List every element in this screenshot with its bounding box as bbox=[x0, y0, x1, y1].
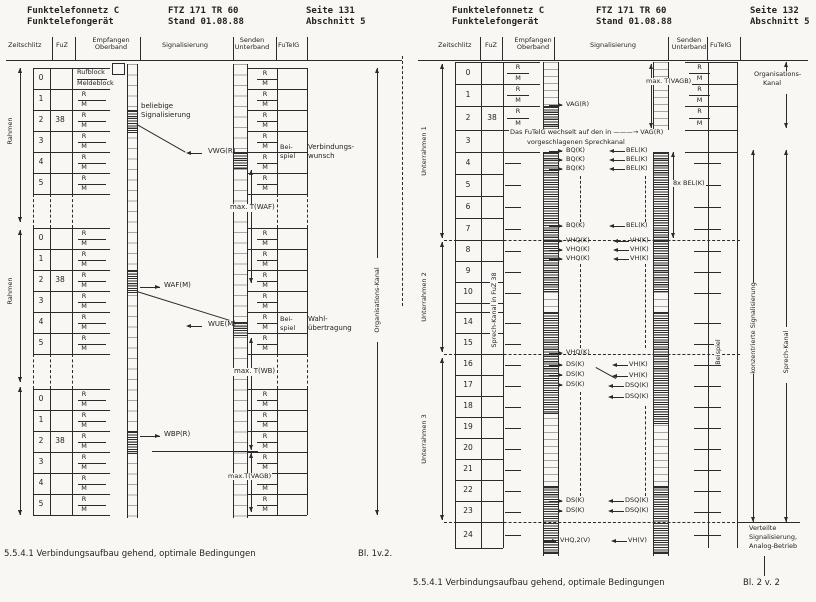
arrowhead bbox=[186, 151, 191, 155]
grid-line bbox=[708, 229, 721, 230]
cell-letter: M bbox=[78, 282, 90, 289]
arrowhead bbox=[558, 224, 563, 228]
arrowhead bbox=[784, 123, 788, 128]
grid-line bbox=[694, 386, 708, 387]
arrowhead bbox=[558, 257, 563, 261]
cell-letter: M bbox=[78, 122, 90, 129]
grid-line bbox=[505, 449, 521, 450]
grid-line bbox=[503, 303, 504, 312]
grid-line bbox=[694, 344, 708, 345]
slot-number: 0 bbox=[456, 69, 480, 77]
grid-line bbox=[673, 152, 674, 238]
grid-line bbox=[694, 535, 708, 536]
hatch-block bbox=[543, 486, 558, 554]
page-seite-132: 0RMRM1RMRM238RMRM34567891014151617181920… bbox=[408, 0, 816, 602]
grid-line bbox=[753, 150, 754, 283]
cell-letter: R bbox=[78, 391, 90, 398]
hatch-block bbox=[653, 240, 668, 292]
grid-line bbox=[307, 354, 308, 389]
cell-letter: R bbox=[78, 154, 90, 161]
signal-label-vhq-k: VHQ(K) bbox=[566, 246, 590, 253]
slot-number: 5 bbox=[34, 339, 48, 347]
grid-line bbox=[694, 229, 708, 230]
rotated-label-rahmen: Rahmen bbox=[6, 118, 14, 145]
grid-line bbox=[276, 37, 277, 60]
text-label: übertragung bbox=[308, 325, 352, 333]
cell-letter: M bbox=[78, 485, 90, 492]
cell-letter: M bbox=[259, 261, 271, 268]
grid-line bbox=[505, 365, 521, 366]
grid-line bbox=[708, 207, 721, 208]
grid-line bbox=[694, 293, 708, 294]
grid-line bbox=[617, 376, 628, 377]
grid-line bbox=[75, 37, 76, 60]
grid-line bbox=[694, 207, 708, 208]
grid-line bbox=[505, 185, 521, 186]
grid-line bbox=[708, 251, 721, 252]
hatch-block bbox=[653, 486, 668, 554]
fuz-channel: 38 bbox=[50, 437, 70, 445]
grid-line bbox=[502, 37, 503, 60]
grid-line bbox=[694, 407, 708, 408]
grid-line bbox=[694, 449, 708, 450]
text-label: 8x BEL(K) bbox=[672, 180, 706, 187]
arrowhead bbox=[558, 373, 563, 377]
signal-label-bel-k: BEL(K) bbox=[626, 156, 648, 163]
cell-letter: M bbox=[259, 485, 271, 492]
cell-letter: M bbox=[259, 282, 271, 289]
text-label: FuZ bbox=[56, 42, 68, 49]
signal-label-dsq-k: DSQ(K) bbox=[625, 393, 649, 400]
cell-letter: M bbox=[259, 303, 271, 310]
signal-label-vh-k: VH(K) bbox=[630, 246, 649, 253]
signal-strip bbox=[127, 64, 137, 518]
slot-number: 3 bbox=[34, 137, 48, 145]
grid-line bbox=[708, 470, 721, 471]
grid-line bbox=[694, 163, 708, 164]
grid-line bbox=[277, 194, 278, 228]
header-text: Seite 132 bbox=[750, 6, 799, 16]
slot-number: 5 bbox=[34, 500, 48, 508]
rotated-label-konzentrierte-signalisierung: konzentrierte Signalisierung bbox=[749, 282, 757, 373]
header-text: FTZ 171 TR 60 bbox=[596, 6, 666, 16]
signal-label-dsq-k: DSQ(K) bbox=[625, 497, 649, 504]
slot-number: 4 bbox=[34, 318, 48, 326]
call-block-label: Rufblock bbox=[77, 69, 105, 76]
call-block-box bbox=[112, 63, 125, 75]
cell-letter: R bbox=[689, 64, 710, 71]
grid-line bbox=[708, 163, 721, 164]
slot-number: 22 bbox=[456, 486, 480, 494]
cell-letter: R bbox=[259, 314, 271, 321]
grid-line bbox=[307, 228, 308, 354]
rotated-label-unterrahmen-2: Unterrahmen 2 bbox=[420, 272, 428, 321]
signal-label-vhq-k: VHQ(K) bbox=[566, 349, 590, 356]
grid-line bbox=[251, 170, 252, 283]
text-label: Zeitschlitz bbox=[8, 42, 41, 49]
grid-line bbox=[653, 152, 654, 556]
cell-letter: R bbox=[78, 272, 90, 279]
grid-line bbox=[653, 62, 654, 130]
text-label: FuTelG bbox=[710, 42, 731, 49]
grid-line bbox=[480, 37, 481, 60]
cell-letter: R bbox=[78, 230, 90, 237]
text-label: Zeitschlitz bbox=[438, 42, 471, 49]
cell-letter: M bbox=[259, 101, 271, 108]
grid-line bbox=[694, 365, 708, 366]
arrowhead bbox=[440, 64, 444, 69]
arrowhead bbox=[155, 285, 160, 289]
cell-letter: R bbox=[507, 86, 529, 93]
column-header: Senden Unterband bbox=[668, 37, 710, 52]
cell-letter: R bbox=[78, 475, 90, 482]
grid-line bbox=[277, 354, 278, 389]
text-label: Analog-Betrieb bbox=[749, 543, 797, 550]
cell-letter: R bbox=[259, 91, 271, 98]
grid-line bbox=[127, 64, 128, 518]
grid-line bbox=[708, 293, 721, 294]
grid-line bbox=[50, 68, 51, 194]
column-header: Senden Unterband bbox=[228, 37, 276, 52]
grid-line bbox=[455, 62, 540, 63]
cell-letter: R bbox=[259, 112, 271, 119]
slot-number: 7 bbox=[456, 225, 480, 233]
cell-letter: M bbox=[259, 240, 271, 247]
slot-number: 23 bbox=[456, 507, 480, 515]
cell-letter: R bbox=[507, 108, 529, 115]
cell-letter: R bbox=[78, 251, 90, 258]
grid-line bbox=[251, 338, 252, 450]
cell-letter: R bbox=[78, 112, 90, 119]
grid-line bbox=[694, 428, 708, 429]
arrowhead bbox=[558, 383, 563, 387]
cell-letter: M bbox=[259, 122, 271, 129]
slot-number: 3 bbox=[456, 137, 480, 145]
signal-label-bq-k: BQ(K) bbox=[566, 147, 585, 154]
grid-line bbox=[708, 386, 721, 387]
cell-letter: R bbox=[78, 91, 90, 98]
grid-line bbox=[708, 303, 709, 312]
signal-label-dsq-k: DSQ(K) bbox=[625, 382, 649, 389]
hatch-block bbox=[127, 270, 137, 293]
arrowhead bbox=[249, 453, 253, 458]
signal-label-vag-r: VAG(R) bbox=[566, 101, 589, 108]
grid-line bbox=[708, 323, 721, 324]
grid-line bbox=[645, 406, 646, 496]
cell-letter: R bbox=[259, 133, 271, 140]
grid-line bbox=[685, 130, 737, 131]
cell-letter: R bbox=[78, 293, 90, 300]
arrowhead bbox=[552, 539, 557, 543]
text-label: spiel bbox=[280, 325, 295, 332]
text-label: Wahl- bbox=[308, 316, 328, 324]
grid-line bbox=[708, 407, 721, 408]
grid-line bbox=[20, 68, 21, 222]
cell-letter: M bbox=[78, 464, 90, 471]
grid-line bbox=[505, 512, 521, 513]
column-header: Signalisierung bbox=[558, 42, 668, 49]
cell-letter: M bbox=[507, 120, 529, 127]
grid-line bbox=[613, 511, 624, 512]
text-label: Bei- bbox=[280, 144, 293, 151]
grid-line bbox=[455, 84, 540, 85]
slot-number: 18 bbox=[456, 402, 480, 410]
grid-line bbox=[455, 501, 503, 502]
arrowhead bbox=[558, 158, 563, 162]
slot-number: 1 bbox=[456, 91, 480, 99]
slot-number: 6 bbox=[456, 203, 480, 211]
arrowhead bbox=[249, 507, 253, 512]
hatch-block bbox=[543, 312, 558, 414]
grid-line bbox=[764, 556, 765, 576]
cell-letter: M bbox=[78, 324, 90, 331]
arrowhead bbox=[186, 324, 191, 328]
cell-letter: M bbox=[78, 261, 90, 268]
grid-line bbox=[455, 106, 540, 107]
cell-letter: M bbox=[689, 120, 710, 127]
cell-letter: R bbox=[259, 391, 271, 398]
slot-number: 2 bbox=[34, 276, 48, 284]
grid-line bbox=[377, 342, 378, 515]
fuz-channel: 38 bbox=[50, 116, 70, 124]
cell-letter: R bbox=[259, 272, 271, 279]
cell-letter: R bbox=[78, 175, 90, 182]
cell-letter: R bbox=[78, 133, 90, 140]
slot-number: 1 bbox=[34, 95, 48, 103]
signal-label-bel-k: BEL(K) bbox=[626, 222, 648, 229]
column-header: Empfangen Oberband bbox=[504, 37, 562, 52]
signal-label-vh-k: VH(K) bbox=[630, 255, 649, 262]
grid-line bbox=[455, 375, 503, 376]
arrowhead bbox=[751, 517, 755, 522]
text-label: WUE(M) bbox=[208, 321, 236, 329]
grid-line bbox=[708, 428, 721, 429]
signal-label-vh-k: VH(K) bbox=[629, 372, 648, 379]
grid-line bbox=[694, 512, 708, 513]
grid-line bbox=[33, 389, 34, 515]
grid-line bbox=[455, 303, 456, 312]
grid-line bbox=[505, 344, 521, 345]
grid-line bbox=[651, 64, 652, 128]
grid-line bbox=[307, 68, 308, 194]
text-label: WAF(M) bbox=[164, 282, 191, 290]
cell-letter: M bbox=[259, 185, 271, 192]
arrowhead bbox=[440, 242, 444, 247]
grid-line bbox=[505, 293, 521, 294]
signal-label-ds-k: DS(K) bbox=[566, 507, 584, 514]
grid-line bbox=[580, 392, 581, 496]
grid-line bbox=[251, 453, 252, 512]
header-text: Stand 01.08.88 bbox=[168, 17, 244, 27]
arrowhead bbox=[440, 358, 444, 363]
rotated-label-unterrahmen-1: Unterrahmen 1 bbox=[420, 126, 428, 175]
signal-label-ds-k: DS(K) bbox=[566, 497, 584, 504]
text-label: VWG(R) bbox=[208, 148, 235, 156]
grid-line bbox=[277, 68, 278, 194]
arrowhead bbox=[558, 509, 563, 513]
text-label: FuZ bbox=[485, 42, 497, 49]
cell-letter: M bbox=[689, 97, 710, 104]
arrowhead bbox=[18, 68, 22, 73]
grid-line bbox=[455, 548, 503, 549]
grid-line bbox=[786, 383, 787, 522]
grid-line bbox=[708, 535, 721, 536]
cell-letter: M bbox=[78, 401, 90, 408]
cell-letter: M bbox=[78, 303, 90, 310]
text-label: max.T(VAGB) bbox=[227, 473, 272, 480]
cell-letter: M bbox=[259, 401, 271, 408]
slot-number: 16 bbox=[456, 360, 480, 368]
signal-label-vh-k: VH(K) bbox=[630, 237, 649, 244]
grid-line bbox=[694, 491, 708, 492]
text-label: FuTelG bbox=[278, 42, 299, 49]
cell-letter: M bbox=[78, 422, 90, 429]
grid-line bbox=[618, 241, 629, 242]
grid-line bbox=[20, 387, 21, 515]
slot-number: 1 bbox=[34, 255, 48, 263]
call-block-label: Meldeblock bbox=[77, 80, 114, 87]
grid-line bbox=[505, 251, 521, 252]
text-label: Bei- bbox=[280, 316, 293, 323]
signal-label-bq-k: BQ(K) bbox=[566, 165, 585, 172]
grid-line bbox=[505, 272, 521, 273]
grid-line bbox=[402, 56, 403, 306]
signal-strip bbox=[233, 64, 247, 518]
fuz-channel: 38 bbox=[482, 114, 502, 122]
grid-line bbox=[505, 207, 521, 208]
grid-line bbox=[233, 64, 234, 518]
slot-number: 4 bbox=[456, 159, 480, 167]
header-text: Seite 131 bbox=[306, 6, 355, 16]
grid-line bbox=[20, 230, 21, 382]
grid-line bbox=[152, 451, 258, 452]
grid-line bbox=[694, 470, 708, 471]
text-label: wunsch bbox=[308, 153, 335, 161]
grid-line bbox=[247, 515, 307, 516]
grid-line bbox=[33, 228, 34, 354]
hatch-block bbox=[653, 312, 668, 424]
grid-line bbox=[617, 365, 628, 366]
grid-line bbox=[505, 491, 521, 492]
arrowhead bbox=[558, 351, 563, 355]
slot-number: 2 bbox=[34, 116, 48, 124]
grid-line bbox=[33, 68, 34, 194]
cell-letter: R bbox=[259, 454, 271, 461]
cell-letter: R bbox=[259, 496, 271, 503]
grid-line bbox=[442, 64, 443, 238]
signal-label-bel-k: BEL(K) bbox=[626, 147, 648, 154]
cell-letter: M bbox=[78, 101, 90, 108]
slot-number: 3 bbox=[34, 297, 48, 305]
arrowhead bbox=[249, 278, 253, 283]
arrowhead bbox=[375, 68, 379, 73]
grid-line bbox=[645, 264, 646, 348]
signal-label-ds-k: DS(K) bbox=[566, 381, 584, 388]
signal-label-bq-k: BQ(K) bbox=[566, 222, 585, 229]
cell-letter: M bbox=[78, 164, 90, 171]
grid-line bbox=[694, 323, 708, 324]
arrowhead bbox=[18, 387, 22, 392]
cell-letter: M bbox=[259, 464, 271, 471]
signal-label-bq-k: BQ(K) bbox=[566, 156, 585, 163]
arrowhead bbox=[558, 103, 563, 107]
cell-letter: R bbox=[78, 496, 90, 503]
slot-number: 10 bbox=[456, 288, 480, 296]
grid-line bbox=[543, 62, 544, 130]
page-seite-131: 0RufblockMeldeblockRM1RMRM238RMRM3RMRM4R… bbox=[0, 0, 408, 602]
rotated-label-sprech-kanal-in-fuz-38: Sprech-Kanal in FuZ 38 bbox=[490, 272, 498, 347]
grid-line bbox=[505, 470, 521, 471]
grid-line bbox=[613, 386, 624, 387]
grid-line bbox=[614, 169, 625, 170]
grid-line bbox=[753, 373, 754, 522]
hatch-block bbox=[127, 431, 137, 454]
grid-line bbox=[418, 60, 808, 61]
grid-line bbox=[786, 150, 787, 327]
grid-line bbox=[694, 272, 708, 273]
rotated-label-unterrahmen-3: Unterrahmen 3 bbox=[420, 414, 428, 463]
grid-line bbox=[444, 240, 740, 241]
grid-line bbox=[708, 491, 721, 492]
slot-number: 5 bbox=[456, 181, 480, 189]
arrowhead bbox=[649, 64, 653, 69]
slot-number: 15 bbox=[456, 339, 480, 347]
grid-line bbox=[558, 62, 559, 130]
cell-letter: M bbox=[78, 443, 90, 450]
grid-line bbox=[613, 397, 624, 398]
arrowhead bbox=[249, 170, 253, 175]
cell-letter: R bbox=[259, 70, 271, 77]
text-label: WBP(R) bbox=[164, 431, 190, 439]
grid-line bbox=[708, 272, 721, 273]
cell-letter: R bbox=[78, 412, 90, 419]
grid-line bbox=[481, 303, 482, 312]
cell-letter: M bbox=[259, 345, 271, 352]
grid-line bbox=[455, 417, 503, 418]
grid-line bbox=[618, 250, 629, 251]
arrowhead bbox=[671, 152, 675, 157]
arrowhead bbox=[440, 515, 444, 520]
slot-number: 2 bbox=[456, 114, 480, 122]
arrowhead bbox=[671, 233, 675, 238]
text-label: max. T(WAF) bbox=[229, 204, 276, 212]
grid-line bbox=[708, 449, 721, 450]
grid-line bbox=[505, 535, 521, 536]
header-text: Funktelefonnetz C bbox=[27, 6, 119, 16]
hatch-block bbox=[127, 110, 137, 133]
connector-line bbox=[137, 291, 230, 321]
grid-line bbox=[740, 37, 741, 60]
arrowhead bbox=[155, 434, 160, 438]
text-label: vorgeschlagenen Sprechkanal bbox=[526, 139, 626, 146]
signal-label-vhq-k: VHQ(K) bbox=[566, 255, 590, 262]
cell-letter: R bbox=[259, 412, 271, 419]
grid-line bbox=[33, 354, 34, 389]
grid-line bbox=[50, 194, 51, 228]
slot-number: 9 bbox=[456, 267, 480, 275]
arrowhead bbox=[558, 363, 563, 367]
connector-line bbox=[137, 124, 186, 153]
slot-number: 14 bbox=[456, 318, 480, 326]
column-header: Signalisierung bbox=[140, 42, 230, 49]
grid-line bbox=[455, 438, 503, 439]
signal-label-vhq-k: VHQ(K) bbox=[566, 237, 590, 244]
grid-line bbox=[580, 264, 581, 348]
slot-number: 4 bbox=[34, 479, 48, 487]
cell-letter: M bbox=[259, 422, 271, 429]
cell-letter: R bbox=[259, 251, 271, 258]
signal-label-ds-k: DS(K) bbox=[566, 361, 584, 368]
